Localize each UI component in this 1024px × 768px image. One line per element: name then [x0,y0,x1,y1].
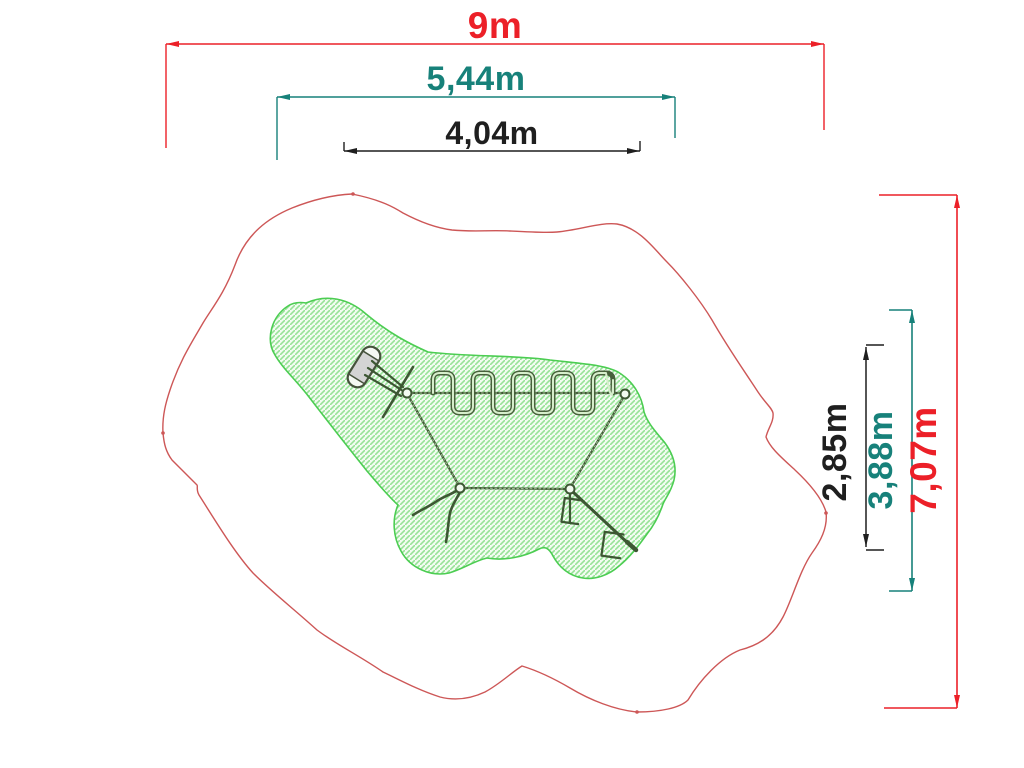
arrowhead [166,41,179,47]
arrowhead [811,41,824,47]
plan-drawing: 9m 5,44m 4,04m 2,85m 3,88m [0,0,1024,768]
arrowhead [954,195,960,208]
arrowhead [662,94,675,100]
post-bottom-right [566,485,575,494]
arrowhead [909,578,915,591]
dim-label-544m: 5,44m [427,60,526,98]
dim-label-9m: 9m [468,5,522,46]
arrowhead [344,148,357,154]
dim-label-388m: 3,88m [862,411,900,510]
arrowhead [863,534,869,547]
dim-label-707m: 7,07m [903,406,944,513]
dimension-equipment-width: 4,04m [344,115,640,154]
plan-sheet: 9m 5,44m 4,04m 2,85m 3,88m [0,0,1024,768]
post-bottom-left [456,484,465,493]
arrowhead [627,148,640,154]
arrowhead [277,94,290,100]
dim-label-404m: 4,04m [445,115,538,151]
arrowhead [954,695,960,708]
arrowhead [909,310,915,323]
arrowhead [863,347,869,360]
post-top-right [621,390,630,399]
dim-label-285m: 2,85m [816,403,854,502]
post-top-left [403,389,412,398]
equipment-footprint-hatched [270,298,675,578]
